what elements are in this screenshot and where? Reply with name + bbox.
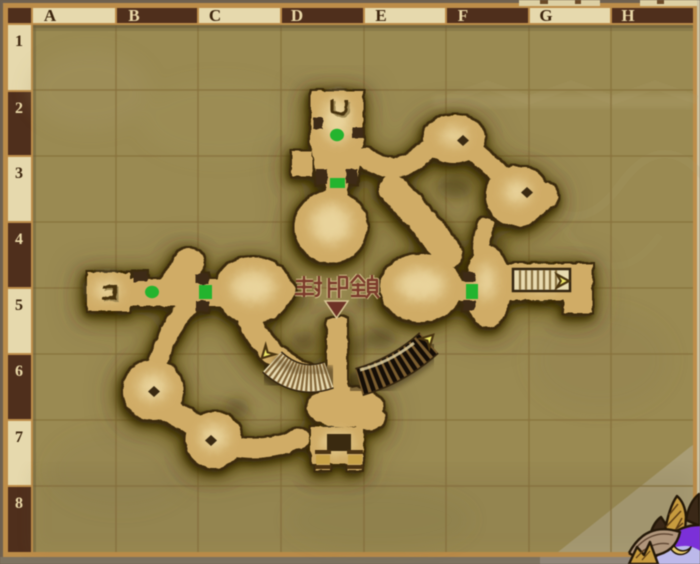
svg-text:E: E [375,6,386,25]
svg-text:8: 8 [15,495,23,512]
svg-text:A: A [44,6,57,25]
svg-text:5: 5 [15,297,23,314]
svg-text:6: 6 [15,363,23,380]
svg-text:F: F [458,6,468,25]
svg-text:G: G [539,6,552,25]
svg-text:3: 3 [15,165,23,182]
svg-text:2: 2 [15,100,23,117]
svg-text:D: D [291,6,303,25]
svg-text:H: H [621,6,634,25]
svg-text:1: 1 [15,33,23,50]
svg-text:B: B [128,6,139,25]
svg-text:4: 4 [15,231,23,248]
svg-text:7: 7 [15,429,23,446]
svg-text:C: C [209,6,221,25]
